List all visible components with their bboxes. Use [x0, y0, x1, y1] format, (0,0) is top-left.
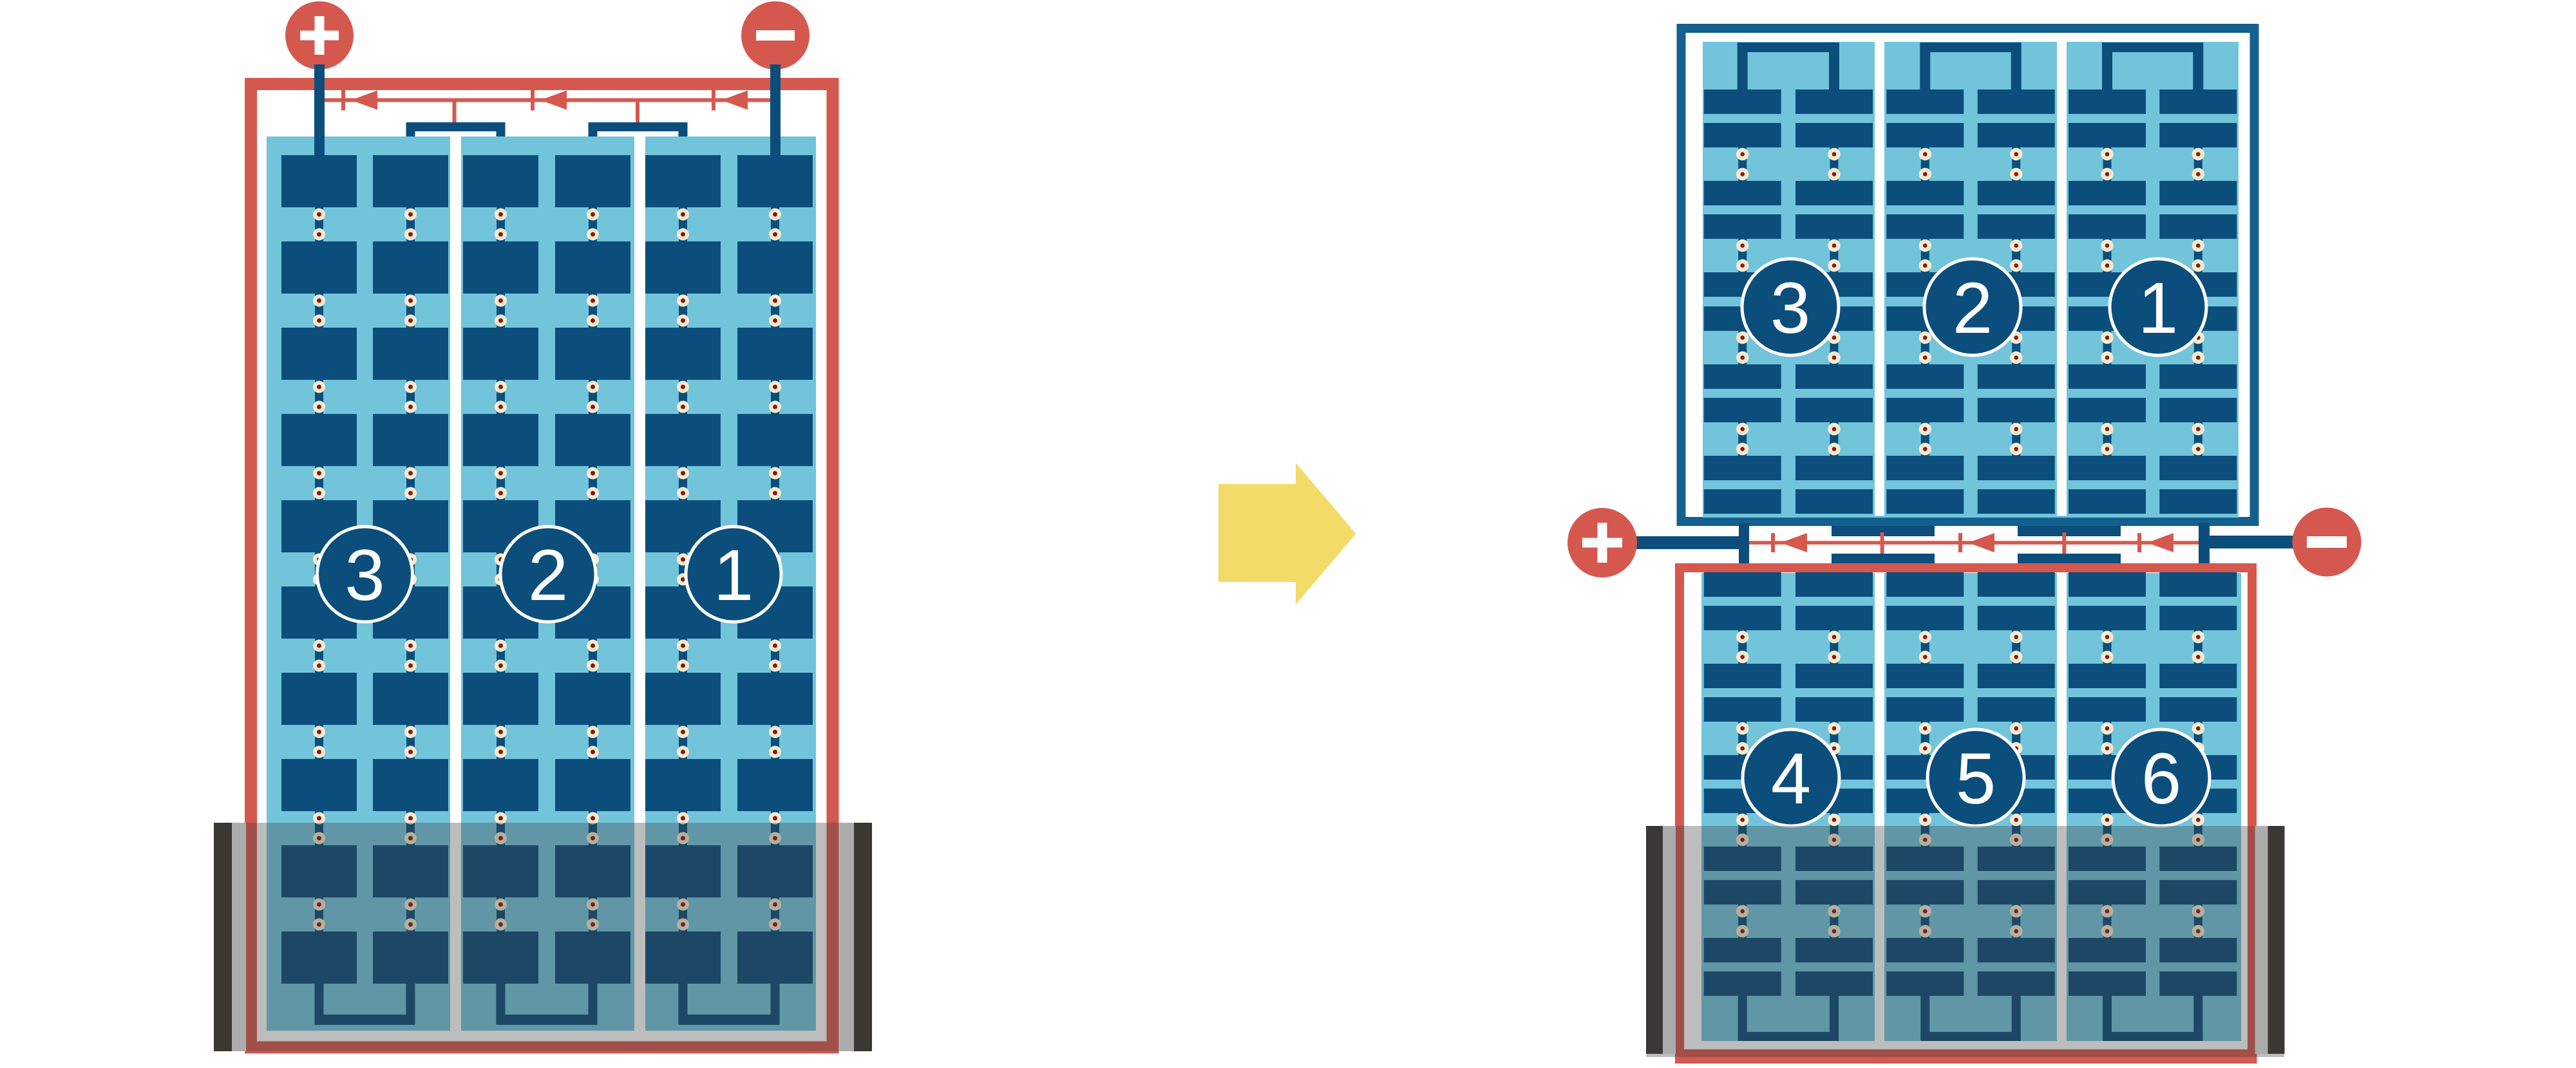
svg-text:2: 2	[528, 535, 568, 615]
svg-text:1: 1	[714, 535, 753, 615]
svg-text:4: 4	[1771, 738, 1811, 819]
svg-text:5: 5	[1956, 738, 1996, 819]
svg-text:3: 3	[345, 535, 384, 615]
svg-text:6: 6	[2141, 738, 2181, 819]
svg-text:2: 2	[1953, 268, 1993, 348]
svg-text:1: 1	[2138, 268, 2178, 348]
svg-text:3: 3	[1770, 268, 1810, 348]
